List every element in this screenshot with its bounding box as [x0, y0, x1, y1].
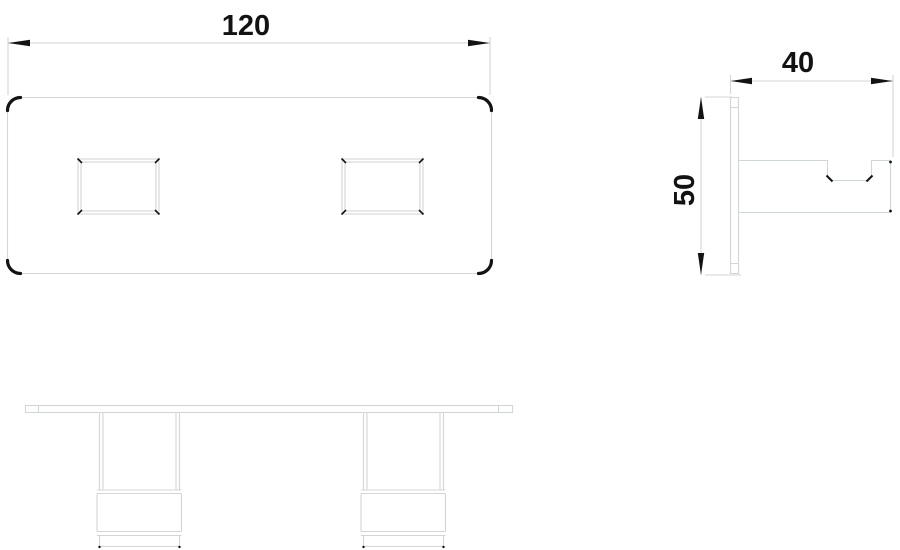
- dimension-label-bracket-height: 50: [669, 174, 701, 206]
- arrow-left-icon: [8, 40, 30, 47]
- side-view: 40 50: [669, 47, 893, 275]
- slot-right: [342, 159, 424, 215]
- cad-drawing: 120 40 50: [0, 0, 900, 550]
- corner-dot: [442, 546, 444, 548]
- dimension-label-plate-width: 120: [222, 10, 270, 42]
- corner-dot: [889, 161, 892, 164]
- arrow-down-icon: [698, 253, 704, 275]
- arrow-right-icon: [468, 40, 490, 47]
- dimension-120: 120: [8, 10, 490, 95]
- hook-arm-profile: [739, 161, 891, 213]
- front-view: 120: [8, 10, 492, 274]
- corner-dot: [889, 210, 892, 213]
- arrow-right-icon: [871, 78, 893, 84]
- leg-right: [361, 413, 446, 549]
- slot-corner-ticks: [78, 159, 160, 215]
- dimension-40: 40: [731, 47, 894, 157]
- corner-dot: [362, 546, 364, 548]
- leg-left: [97, 413, 182, 549]
- corner-dot: [98, 546, 100, 548]
- arrow-up-icon: [698, 97, 704, 119]
- side-plate: [731, 98, 739, 274]
- arrow-left-icon: [731, 78, 753, 84]
- drawing-canvas: 120 40 50: [0, 0, 900, 550]
- slot-left: [78, 159, 160, 215]
- corner-dot: [178, 546, 180, 548]
- slot-corner-ticks: [342, 159, 424, 215]
- front-plate-outline: [8, 98, 492, 274]
- dimension-label-bracket-depth: 40: [782, 47, 814, 79]
- bottom-view: [26, 406, 513, 549]
- bottom-bar: [26, 406, 513, 413]
- corner-fillet-arcs: [8, 98, 492, 274]
